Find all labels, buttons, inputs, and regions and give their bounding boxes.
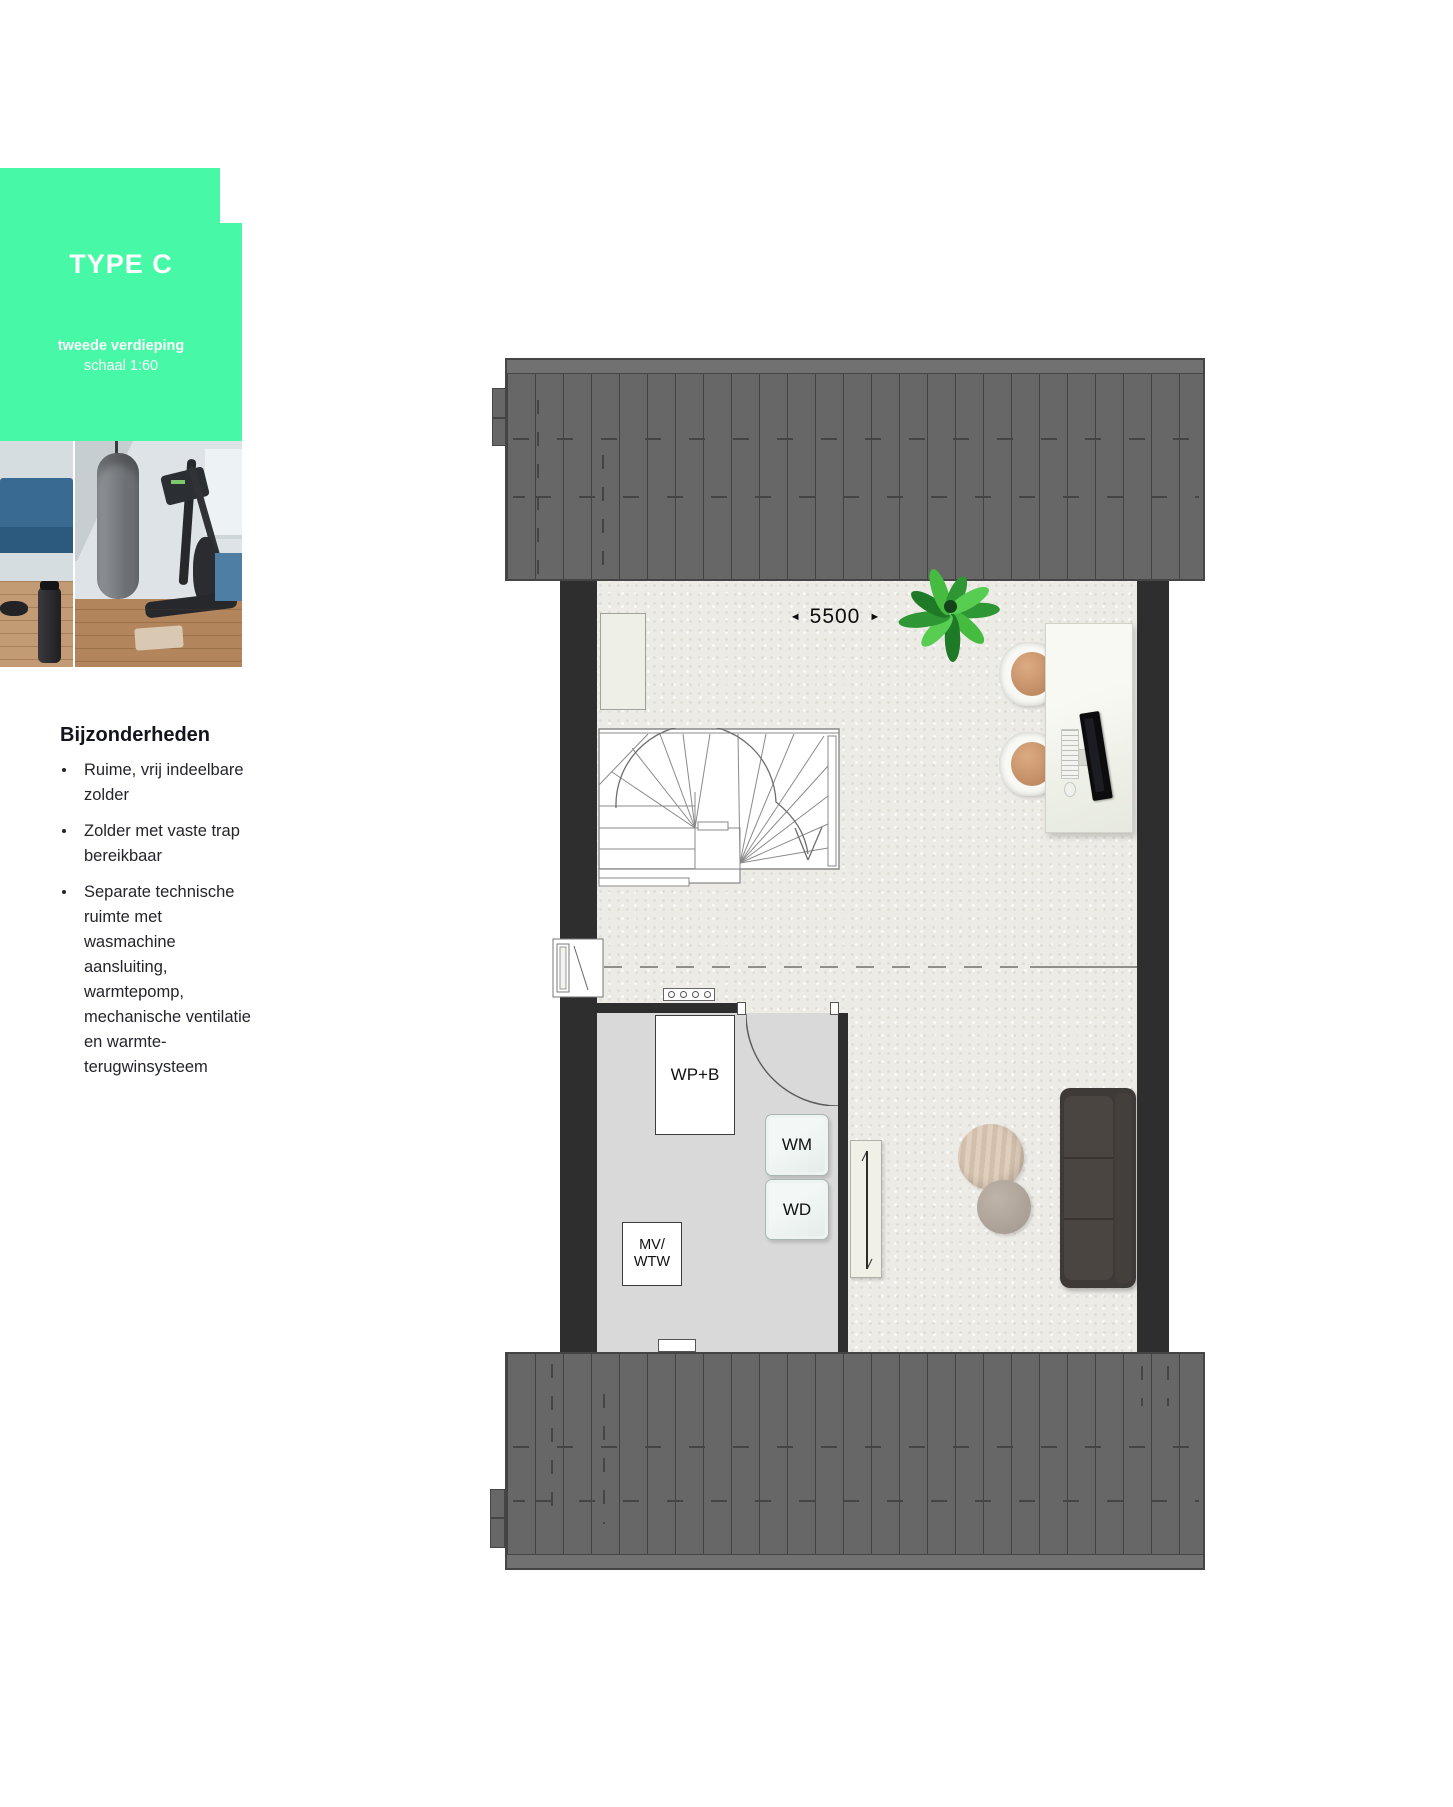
type-title: TYPE C (0, 249, 242, 280)
door-jamb (830, 1002, 839, 1015)
door-swing-arc (746, 1014, 838, 1106)
plant-center (944, 600, 957, 613)
vent-hole (704, 991, 711, 998)
ventilation-grille (663, 988, 715, 1001)
sofa-seat-area (1064, 1096, 1113, 1280)
winder-staircase (598, 728, 842, 890)
roof-eave (507, 1554, 1203, 1568)
dimension-5500: ◄ 5500 ► (765, 604, 905, 630)
tall-cabinet (850, 1140, 882, 1278)
sofa-backrest (1115, 1093, 1132, 1283)
dryer: WD (765, 1179, 829, 1240)
washer-label: WM (782, 1135, 812, 1155)
protrusion-divider (493, 417, 505, 419)
keyboard (1061, 729, 1079, 779)
details-list: Ruime, vrij indeelbare zolder Zolder met… (60, 758, 256, 1091)
sofa (1060, 1088, 1136, 1288)
brochure-page: TYPE C tweede verdieping schaal 1:60 Bij… (0, 0, 1453, 1807)
list-item: Zolder met vaste trap bereikbaar (60, 819, 256, 869)
console-screen (171, 480, 185, 484)
roof-edge-protrusion (492, 388, 506, 446)
door-jamb (737, 1002, 746, 1015)
technical-room-wall-right (838, 1013, 848, 1352)
side-table-round-small (977, 1180, 1031, 1234)
punching-bag (97, 453, 139, 599)
list-item: Ruime, vrij indeelbare zolder (60, 758, 256, 808)
ventilation-label-line2: WTW (634, 1254, 670, 1270)
ventilation-label: MV/ WTW (634, 1237, 670, 1271)
protrusion-divider (491, 1517, 504, 1519)
washing-machine: WM (765, 1114, 829, 1176)
bench-seat (0, 527, 73, 553)
vent-hole (668, 991, 675, 998)
dimension-value: 5500 (810, 605, 861, 629)
roof-bottom (505, 1352, 1205, 1570)
wood-floor (0, 581, 73, 667)
roof-top (505, 358, 1205, 581)
side-table-round (958, 1124, 1024, 1190)
roof-seam-dashes (513, 1500, 1199, 1502)
bullet-text: Zolder met vaste trap bereikbaar (84, 822, 240, 865)
bullet-dot (62, 890, 66, 894)
roof-panels (507, 1354, 1203, 1554)
water-bottle (38, 587, 61, 663)
badge-subtitle: tweede verdieping schaal 1:60 (0, 336, 242, 376)
potted-plant (898, 562, 1008, 662)
bullet-dot (62, 768, 66, 772)
roof-seam-dashes (513, 1446, 1199, 1448)
roof-seam-dashes-vertical (1167, 1366, 1169, 1406)
roof-panels (507, 374, 1203, 579)
ventilation-label-line1: MV/ (639, 1237, 665, 1253)
roof-seam-dashes-vertical (1141, 1366, 1143, 1406)
dumbbell (0, 601, 28, 616)
vent-hole (692, 991, 699, 998)
sofa-cushion-divider (1064, 1218, 1113, 1220)
dryer-label: WD (783, 1200, 811, 1220)
roof-seam-dashes-vertical (603, 1394, 605, 1524)
mouse (1064, 782, 1076, 797)
list-item: Separate technische ruimte met wasmachin… (60, 880, 256, 1080)
left-wall-window (552, 938, 604, 998)
roof-seam-dashes-vertical (602, 455, 604, 575)
roof-ridge (507, 360, 1203, 374)
heat-pump-label: WP+B (671, 1065, 720, 1085)
floor-label: tweede verdieping (0, 336, 242, 356)
vent-hole (680, 991, 687, 998)
bullet-text: Separate technische ruimte met wasmachin… (84, 883, 251, 1076)
technical-room-wall-top (597, 1003, 738, 1013)
mechanical-ventilation-unit: MV/ WTW (622, 1222, 682, 1286)
sofa-cushion-divider (1064, 1157, 1113, 1159)
roof-seam-dashes (513, 438, 1199, 440)
heat-pump-boiler: WP+B (655, 1015, 735, 1135)
built-in-closet (600, 613, 646, 710)
gym-photo-right (75, 441, 242, 667)
bench-back-cushion (0, 478, 73, 530)
roof-seam-dashes-vertical (551, 1364, 553, 1524)
scale-label: schaal 1:60 (0, 356, 242, 376)
roof-seam-dashes-vertical (537, 400, 539, 575)
cabinet-door-line (851, 1141, 883, 1279)
bullet-text: Ruime, vrij indeelbare zolder (84, 761, 244, 804)
height-line-solid (1030, 966, 1137, 968)
foot-step (134, 625, 183, 650)
gym-photo-left (0, 441, 73, 667)
details-heading: Bijzonderheden (60, 724, 210, 747)
type-badge-step (0, 168, 220, 225)
height-line-dashed (604, 966, 1030, 968)
roof-edge-protrusion (490, 1489, 505, 1548)
vent-opening (658, 1339, 696, 1352)
blue-cushion (215, 553, 242, 601)
wall-right (1137, 581, 1169, 1352)
bottle-cap (40, 581, 59, 590)
dimension-arrow-right-icon: ► (869, 611, 880, 623)
bullet-dot (62, 829, 66, 833)
roof-seam-dashes (513, 496, 1199, 498)
dimension-arrow-left-icon: ◄ (790, 611, 801, 623)
